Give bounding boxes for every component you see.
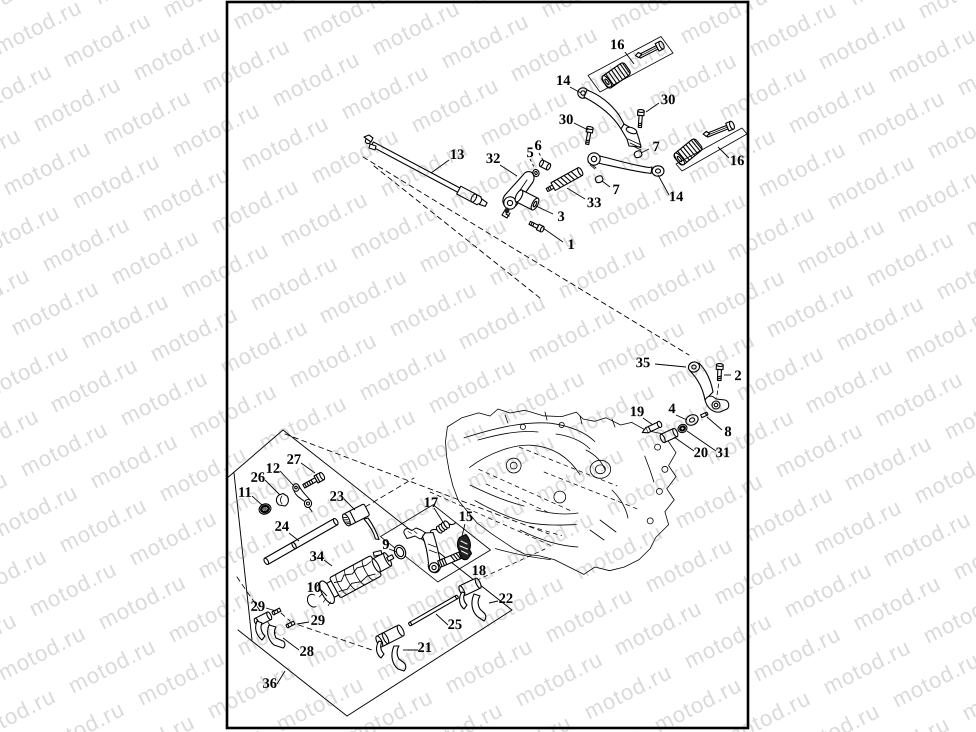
svg-text:30: 30: [559, 112, 574, 128]
svg-text:3: 3: [557, 209, 564, 225]
svg-text:7: 7: [612, 182, 619, 198]
svg-text:6: 6: [535, 138, 542, 154]
svg-text:10: 10: [307, 580, 322, 596]
svg-text:16: 16: [610, 37, 625, 53]
